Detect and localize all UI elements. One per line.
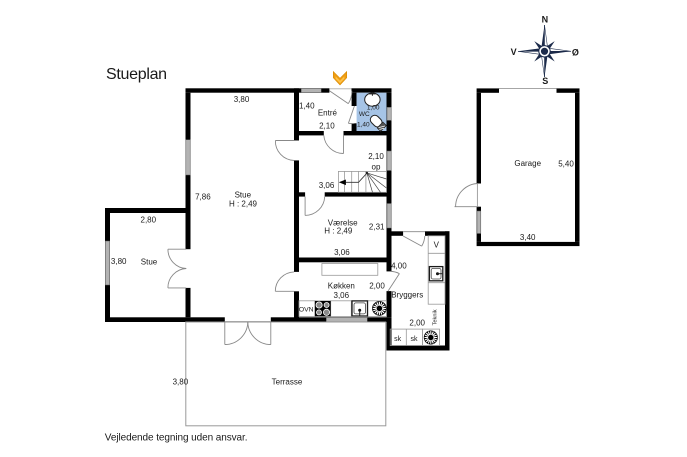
svg-text:1,40: 1,40 bbox=[357, 121, 370, 128]
svg-text:3,40: 3,40 bbox=[520, 233, 536, 242]
svg-text:Stue: Stue bbox=[235, 191, 252, 200]
svg-text:Garage: Garage bbox=[514, 159, 541, 168]
svg-text:Køkken: Køkken bbox=[328, 281, 355, 290]
svg-text:H : 2,49: H : 2,49 bbox=[324, 227, 353, 236]
svg-text:3,80: 3,80 bbox=[234, 95, 250, 104]
svg-text:Terrasse: Terrasse bbox=[272, 378, 303, 387]
svg-text:Entré: Entré bbox=[318, 109, 338, 118]
svg-text:2,00: 2,00 bbox=[409, 319, 425, 328]
svg-text:2,10: 2,10 bbox=[319, 122, 335, 131]
svg-text:4,00: 4,00 bbox=[391, 261, 407, 270]
svg-text:3,06: 3,06 bbox=[334, 291, 350, 300]
svg-text:1,40: 1,40 bbox=[299, 102, 315, 111]
svg-text:H : 2,49: H : 2,49 bbox=[229, 200, 258, 209]
svg-text:2,00: 2,00 bbox=[369, 281, 385, 290]
svg-text:V: V bbox=[434, 240, 440, 249]
svg-text:2,80: 2,80 bbox=[141, 215, 157, 224]
svg-text:7,86: 7,86 bbox=[195, 192, 211, 201]
svg-text:3,06: 3,06 bbox=[334, 248, 350, 257]
svg-text:WC: WC bbox=[359, 111, 370, 118]
svg-text:sk: sk bbox=[394, 336, 402, 343]
svg-text:Vejledende tegning uden ansvar: Vejledende tegning uden ansvar. bbox=[105, 432, 248, 443]
svg-text:N: N bbox=[542, 15, 549, 25]
svg-text:Bryggers: Bryggers bbox=[391, 291, 423, 300]
svg-text:Stue: Stue bbox=[141, 258, 158, 267]
svg-text:3,80: 3,80 bbox=[111, 257, 127, 266]
svg-text:5,40: 5,40 bbox=[558, 160, 574, 169]
svg-text:2,10: 2,10 bbox=[368, 152, 384, 161]
svg-text:OVN: OVN bbox=[299, 306, 314, 313]
svg-text:op: op bbox=[372, 163, 381, 172]
svg-text:V: V bbox=[511, 47, 517, 57]
svg-text:Ø: Ø bbox=[572, 47, 579, 57]
svg-text:sk: sk bbox=[411, 336, 419, 343]
svg-text:3,80: 3,80 bbox=[173, 378, 189, 387]
svg-text:Teknik: Teknik bbox=[432, 309, 438, 325]
svg-text:2,31: 2,31 bbox=[369, 223, 385, 232]
svg-text:S: S bbox=[542, 76, 548, 86]
svg-text:Stueplan: Stueplan bbox=[106, 66, 167, 83]
svg-text:3,06: 3,06 bbox=[319, 181, 335, 190]
